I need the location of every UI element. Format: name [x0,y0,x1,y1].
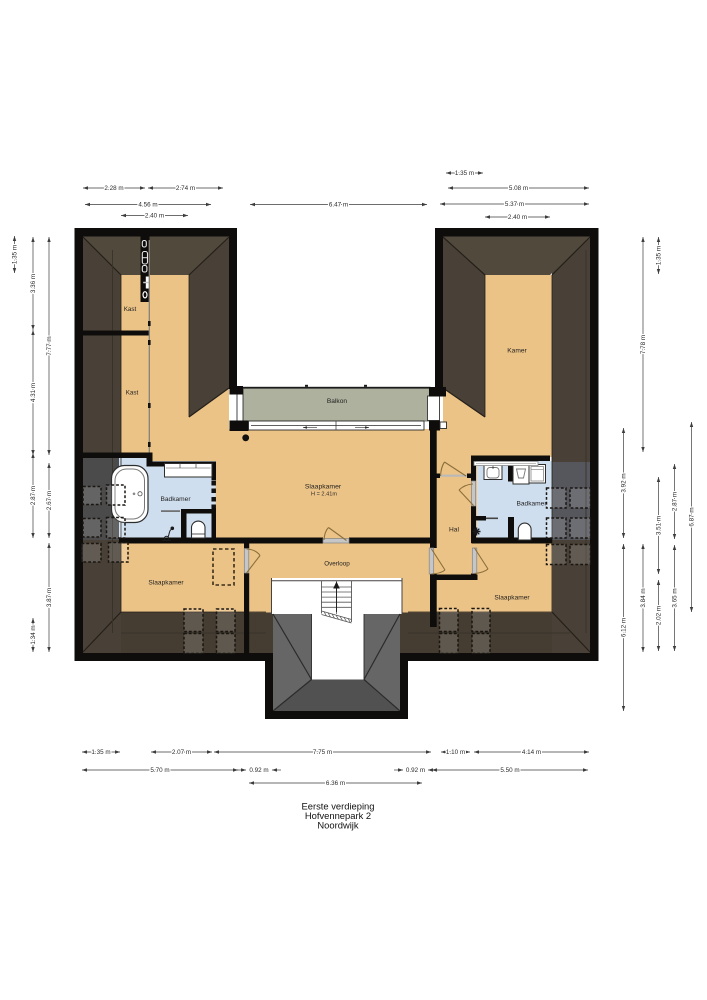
svg-text:2.07 m: 2.07 m [172,749,191,756]
svg-text:Balkon: Balkon [327,398,347,405]
svg-text:H = 2.41m: H = 2.41m [311,492,337,498]
svg-text:0.92 m: 0.92 m [249,767,268,774]
svg-text:2.28 m: 2.28 m [104,185,123,192]
svg-text:2.02 m: 2.02 m [656,606,663,625]
svg-text:1.35 m: 1.35 m [656,246,663,265]
svg-text:Kamer: Kamer [507,348,527,355]
svg-text:3.36 m: 3.36 m [30,274,37,293]
svg-text:2.40 m: 2.40 m [145,213,164,220]
svg-text:5.37 m: 5.37 m [505,201,524,208]
svg-text:5.08 m: 5.08 m [509,185,528,192]
svg-text:Kast: Kast [124,306,137,313]
svg-text:7.75 m: 7.75 m [313,749,332,756]
svg-text:2.87 m: 2.87 m [30,486,37,505]
svg-text:1.35 m: 1.35 m [455,170,474,177]
svg-text:0.92 m: 0.92 m [406,767,425,774]
svg-text:3.65 m: 3.65 m [672,588,679,607]
svg-text:Slaapkamer: Slaapkamer [148,580,184,587]
svg-text:6.36 m: 6.36 m [326,780,345,787]
svg-text:Badkamer: Badkamer [516,501,547,508]
svg-text:2.87 m: 2.87 m [672,492,679,511]
svg-text:4.14 m: 4.14 m [522,749,541,756]
svg-text:3.92 m: 3.92 m [621,473,628,492]
svg-text:5.70 m: 5.70 m [150,767,169,774]
svg-text:3.51 m: 3.51 m [656,516,663,535]
svg-text:4.56 m: 4.56 m [138,202,157,209]
svg-text:6.12 m: 6.12 m [621,618,628,637]
svg-text:3.87 m: 3.87 m [46,588,53,607]
svg-text:1.34 m: 1.34 m [30,625,37,644]
svg-text:Hal: Hal [449,527,459,534]
svg-text:7.77 m: 7.77 m [46,336,53,355]
svg-text:6.47 m: 6.47 m [329,202,348,209]
svg-text:2.74 m: 2.74 m [176,185,195,192]
svg-text:Overloop: Overloop [324,561,350,568]
svg-text:Badkamer: Badkamer [160,496,191,503]
svg-text:Kast: Kast [126,390,139,397]
svg-text:Noordwijk: Noordwijk [317,820,358,831]
svg-text:Slaapkamer: Slaapkamer [494,595,530,602]
svg-text:2.40 m: 2.40 m [508,214,527,221]
svg-text:1.35 m: 1.35 m [91,749,110,756]
svg-text:6.87 m: 6.87 m [689,507,696,526]
svg-text:5.50 m: 5.50 m [500,767,519,774]
svg-text:7.78 m: 7.78 m [640,335,647,354]
svg-text:1.35 m: 1.35 m [12,245,19,264]
svg-text:4.31 m: 4.31 m [30,383,37,402]
svg-text:1.10 m: 1.10 m [446,749,465,756]
svg-text:3.84 m: 3.84 m [640,588,647,607]
svg-text:Slaapkamer: Slaapkamer [305,484,342,491]
svg-text:2.67 m: 2.67 m [46,491,53,510]
